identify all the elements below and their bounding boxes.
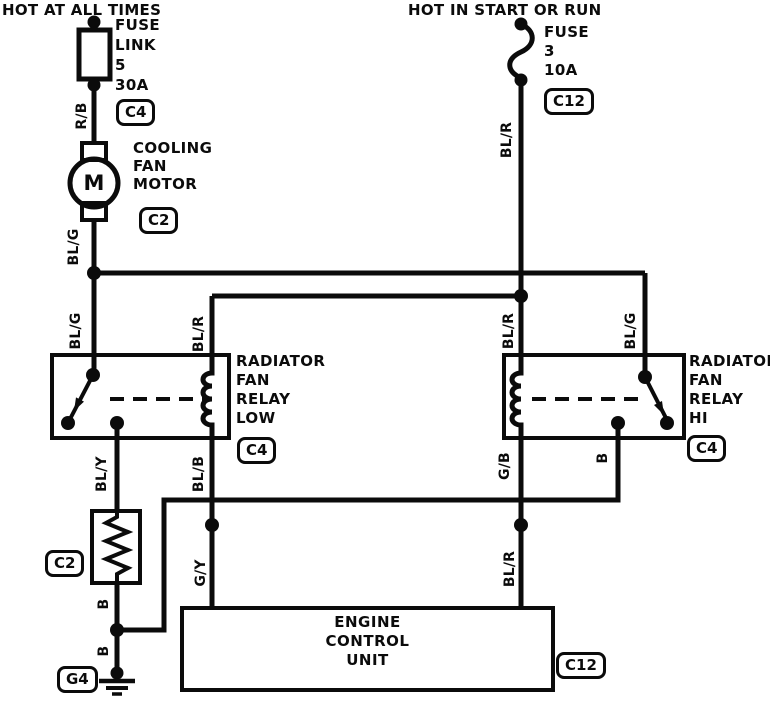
fuse-squiggle [510,24,533,78]
wire-label-bl-g-motor: BL/G [66,229,82,266]
relay-hi-symbol [504,355,684,438]
wire-label-bl-r-relay-hi: BL/R [501,313,517,349]
header-hot-in-start-or-run: HOT IN START OR RUN [408,1,601,19]
wire-label-bl-g-relay-hi: BL/G [623,313,639,350]
relay-hi-switch-arrow [654,401,664,415]
wire-label-b-relay-hi: B [595,453,611,464]
cooling-fan-motor-label: COOLING FAN MOTOR [133,139,212,193]
fuse-label: FUSE 3 10A [544,23,589,80]
wire-label-bl-b: BL/B [191,456,207,492]
relay-contact-dot [86,368,100,382]
fuse-link-symbol [79,16,110,92]
wire-label-bl-g-relay-low: BL/G [68,313,84,350]
connector-tag-c12-ecu: C12 [556,652,606,679]
connector-tag-g4-ground: G4 [57,666,98,693]
splice-dot [514,518,528,532]
wire-label-r-b: R/B [74,102,90,129]
ground-symbol [99,667,135,695]
relay-hi-label: RADIATOR FAN RELAY HI [689,352,770,428]
wire-label-bl-y: BL/Y [94,456,110,492]
fuse-symbol [510,18,533,87]
relay-contact-dot [660,416,674,430]
resistor-zigzag [106,511,128,583]
relay-low-label: RADIATOR FAN RELAY LOW [236,352,325,428]
wiring-diagram: HOT AT ALL TIMES HOT IN START OR RUN FUS… [0,0,770,705]
connector-tag-c12-fuse: C12 [544,88,594,115]
connector-tag-c4-fuse-link: C4 [116,99,155,126]
relay-contact-dot [638,370,652,384]
wire-label-bl-r-ecu: BL/R [502,551,518,587]
wire-label-b-resistor: B [96,599,112,610]
terminal-dot [111,667,124,680]
connector-tag-c2-resistor: C2 [45,550,84,577]
connector-tag-c4-relay-hi: C4 [687,435,726,462]
wire-label-bl-r-relay-low: BL/R [191,316,207,352]
wire-label-b-ground: B [96,646,112,657]
wire-label-bl-r-fuse: BL/R [499,122,515,158]
wire-b-relay-hi-to-ground [117,423,618,630]
motor-m-symbol: M [84,171,105,195]
fuse-link-label: FUSE LINK 5 30A [115,15,160,95]
relay-contact-dot [61,416,75,430]
relay-low-switch-arm [69,375,93,421]
ecu-label: ENGINE CONTROL UNIT [182,613,553,670]
splice-dot [205,518,219,532]
wire-label-g-b: G/B [497,452,513,480]
connector-tag-c4-relay-low: C4 [237,437,276,464]
connector-tag-c2-motor: C2 [139,207,178,234]
resistor-symbol [92,511,140,583]
wire-label-g-y: G/Y [193,559,209,586]
fuse-link-box [79,30,110,79]
relay-hi-switch-arm [645,377,668,422]
